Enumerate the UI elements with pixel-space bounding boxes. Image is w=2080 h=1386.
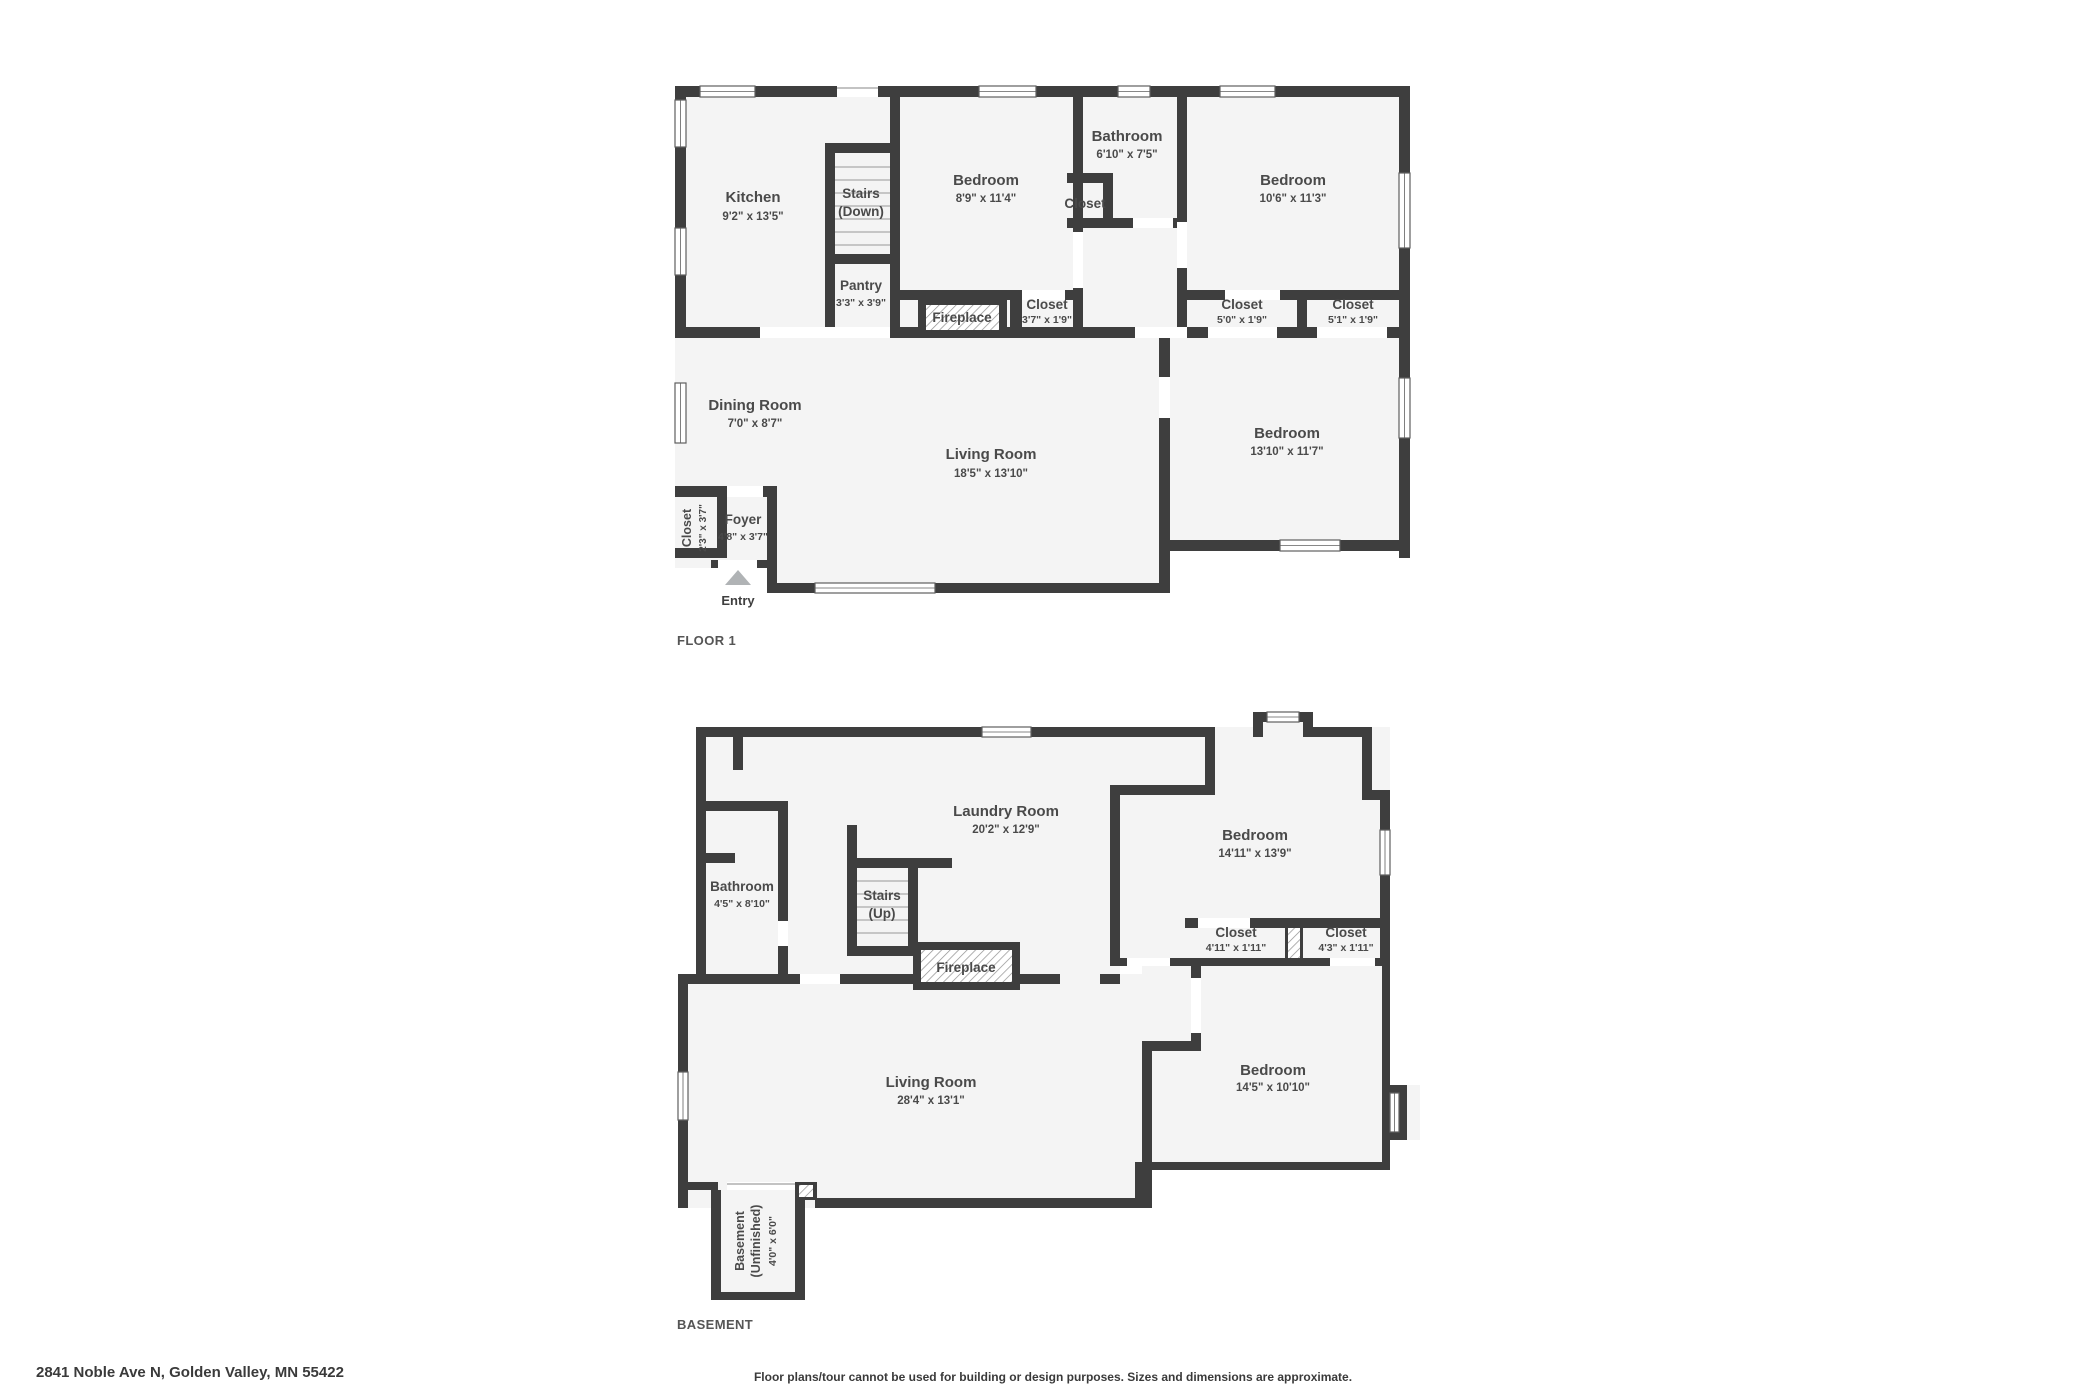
svg-text:10'6" x 11'3": 10'6" x 11'3": [1260, 193, 1327, 205]
svg-text:Bedroom: Bedroom: [953, 172, 1019, 189]
room-label-closet1: Closet 3'7" x 1'9": [1022, 297, 1072, 326]
svg-text:(Down): (Down): [838, 204, 884, 219]
svg-text:Stairs: Stairs: [863, 888, 901, 903]
svg-text:3'3" x 3'9": 3'3" x 3'9": [836, 297, 886, 309]
svg-text:2'3" x 3'7": 2'3" x 3'7": [698, 504, 709, 552]
floor-plan-page: Kitchen 9'2" x 13'5" Stairs (Down) Pantr…: [0, 0, 2080, 1386]
svg-text:Closet: Closet: [1325, 925, 1367, 940]
room-label-bath-closet: Closet: [1064, 196, 1106, 211]
room-label-bedroom1: Bedroom 14'11" x 13'9": [1218, 827, 1291, 860]
room-label-bathroom: Bathroom 6'10" x 7'5": [1092, 128, 1163, 161]
svg-text:Living Room: Living Room: [886, 1074, 977, 1091]
svg-text:Bathroom: Bathroom: [710, 879, 774, 894]
svg-text:Living Room: Living Room: [946, 446, 1037, 463]
svg-text:Closet: Closet: [1026, 297, 1068, 312]
room-label-bedroom1: Bedroom 8'9" x 11'4": [953, 172, 1019, 205]
landing-hatch: [799, 1185, 813, 1197]
disclaimer-text: Floor plans/tour cannot be used for buil…: [703, 1370, 1403, 1384]
svg-text:4'5" x 8'10": 4'5" x 8'10": [714, 898, 770, 910]
svg-text:7'0" x 8'7": 7'0" x 8'7": [728, 418, 783, 430]
svg-text:18'5" x 13'10": 18'5" x 13'10": [954, 468, 1028, 480]
svg-text:Stairs: Stairs: [842, 186, 880, 201]
floor1-floor-fill: [675, 86, 1410, 593]
room-label-closet3: Closet 5'1" x 1'9": [1328, 297, 1378, 326]
svg-text:14'5" x 10'10": 14'5" x 10'10": [1236, 1082, 1310, 1094]
room-label-bedroom3: Bedroom 13'10" x 11'7": [1250, 425, 1323, 458]
svg-text:28'4" x 13'1": 28'4" x 13'1": [897, 1095, 965, 1107]
svg-text:Bedroom: Bedroom: [1240, 1062, 1306, 1079]
svg-text:Dining Room: Dining Room: [708, 397, 801, 414]
svg-text:Bathroom: Bathroom: [1092, 128, 1163, 145]
svg-text:4'8" x 3'7": 4'8" x 3'7": [718, 531, 768, 543]
basement-title: BASEMENT: [677, 1317, 753, 1332]
property-address: 2841 Noble Ave N, Golden Valley, MN 5542…: [36, 1364, 344, 1381]
svg-text:Pantry: Pantry: [840, 278, 883, 293]
svg-text:Closet: Closet: [1221, 297, 1263, 312]
svg-text:4'11" x 1'11": 4'11" x 1'11": [1206, 942, 1267, 954]
room-label-bedroom2: Bedroom 14'5" x 10'10": [1236, 1062, 1310, 1094]
basement-plan: Laundry Room 20'2" x 12'9" Bathroom 4'5"…: [665, 700, 1425, 1320]
basement-floor-fill: [678, 712, 1420, 1300]
svg-text:Foyer: Foyer: [725, 512, 763, 527]
room-label-fireplace: Fireplace: [932, 310, 992, 325]
svg-text:Closet: Closet: [680, 508, 694, 547]
room-label-living: Living Room 28'4" x 13'1": [886, 1074, 977, 1107]
svg-text:(Up): (Up): [869, 906, 896, 921]
svg-text:9'2" x 13'5": 9'2" x 13'5": [722, 211, 783, 223]
svg-text:Basement: Basement: [733, 1210, 747, 1271]
entry-arrow-icon: [725, 570, 751, 585]
svg-text:3'7" x 1'9": 3'7" x 1'9": [1022, 314, 1072, 326]
svg-text:Kitchen: Kitchen: [725, 189, 780, 206]
svg-text:Bedroom: Bedroom: [1222, 827, 1288, 844]
svg-text:8'9" x 11'4": 8'9" x 11'4": [956, 193, 1017, 205]
room-label-closet2: Closet 4'3" x 1'11": [1318, 925, 1373, 954]
closet-divider-hatch: [1288, 928, 1300, 958]
svg-text:Bedroom: Bedroom: [1260, 172, 1326, 189]
svg-text:Bedroom: Bedroom: [1254, 425, 1320, 442]
svg-text:5'1" x 1'9": 5'1" x 1'9": [1328, 314, 1378, 326]
svg-text:4'0" x 6'0": 4'0" x 6'0": [767, 1216, 779, 1266]
svg-text:20'2" x 12'9": 20'2" x 12'9": [972, 824, 1040, 836]
room-label-bedroom2: Bedroom 10'6" x 11'3": [1260, 172, 1327, 205]
svg-text:Closet: Closet: [1215, 925, 1257, 940]
room-label-closet2: Closet 5'0" x 1'9": [1217, 297, 1267, 326]
svg-text:5'0" x 1'9": 5'0" x 1'9": [1217, 314, 1267, 326]
floor1-plan: Kitchen 9'2" x 13'5" Stairs (Down) Pantr…: [665, 78, 1425, 623]
floor1-title: FLOOR 1: [677, 633, 736, 648]
entry-label: Entry: [721, 593, 755, 608]
svg-text:6'10" x 7'5": 6'10" x 7'5": [1096, 149, 1157, 161]
svg-text:13'10" x 11'7": 13'10" x 11'7": [1250, 446, 1323, 458]
svg-text:14'11" x 13'9": 14'11" x 13'9": [1218, 848, 1291, 860]
svg-text:(Unfinished): (Unfinished): [749, 1205, 763, 1278]
svg-text:Closet: Closet: [1332, 297, 1374, 312]
room-label-fireplace: Fireplace: [936, 960, 996, 975]
svg-text:Laundry Room: Laundry Room: [953, 803, 1059, 820]
svg-text:4'3" x 1'11": 4'3" x 1'11": [1318, 942, 1373, 954]
